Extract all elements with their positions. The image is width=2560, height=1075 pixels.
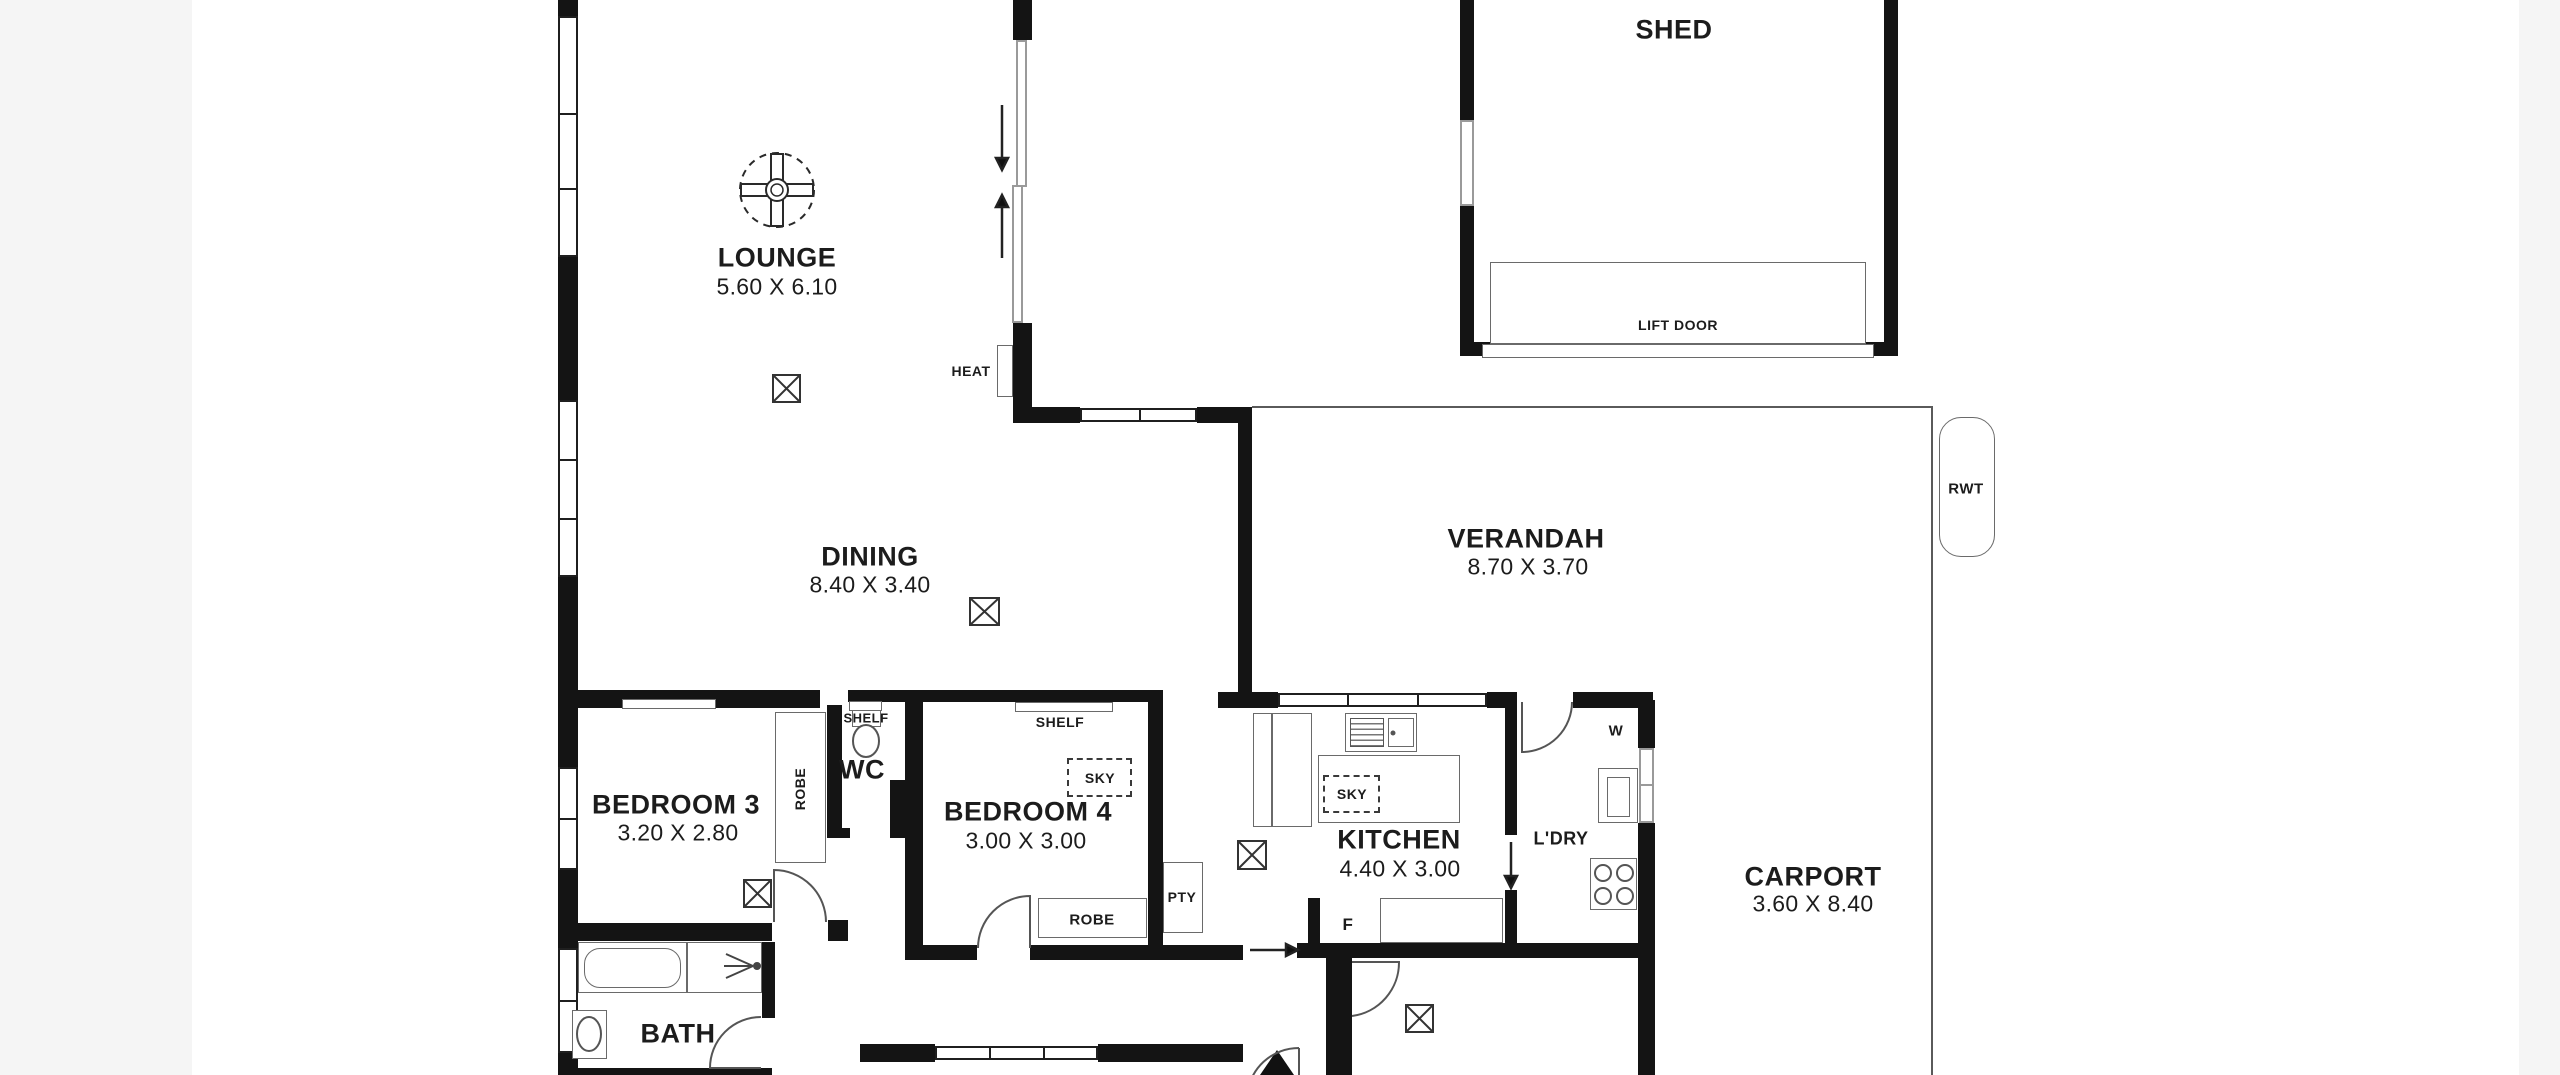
- shelf-label: SHELF: [1036, 714, 1084, 730]
- robe-label: ROBE: [1069, 912, 1114, 929]
- robe-label: ROBE: [792, 768, 808, 810]
- sky-label: SKY: [1337, 786, 1367, 802]
- room-dims-bedroom3: 3.20 X 2.80: [618, 820, 739, 847]
- plan-symbols: [0, 0, 2560, 1075]
- room-label-kitchen: KITCHEN: [1337, 825, 1461, 856]
- sink-tap-icon: [1391, 731, 1396, 736]
- slide-arrow-icon: [1505, 842, 1517, 888]
- room-label-verandah: VERANDAH: [1447, 524, 1604, 555]
- vanity-basin-icon: [577, 1017, 601, 1051]
- room-dims-lounge: 5.60 X 6.10: [717, 274, 838, 301]
- room-dims-bedroom4: 3.00 X 3.00: [966, 828, 1087, 855]
- slide-arrow-icon: [996, 105, 1008, 258]
- heat-label: HEAT: [951, 363, 990, 379]
- room-dims-dining: 8.40 X 3.40: [810, 572, 931, 599]
- room-label-bedroom4: BEDROOM 4: [944, 797, 1112, 828]
- room-label-shed: SHED: [1635, 15, 1712, 46]
- room-label-bedroom3: BEDROOM 3: [592, 790, 760, 821]
- washer-label: W: [1609, 723, 1624, 740]
- room-dims-verandah: 8.70 X 3.70: [1468, 554, 1589, 581]
- rwt-label: RWT: [1948, 481, 1983, 498]
- floor-plan: LOUNGE 5.60 X 6.10 DINING 8.40 X 3.40 VE…: [0, 0, 2560, 1075]
- downlight-icon: [744, 375, 1433, 1032]
- room-label-wc: WC: [839, 755, 885, 786]
- fridge-label: F: [1343, 915, 1354, 935]
- pantry-label: PTY: [1168, 889, 1197, 905]
- room-label-bath: BATH: [641, 1019, 716, 1050]
- slide-arrow-icon: [1250, 944, 1298, 956]
- door-arc: [710, 702, 2560, 1075]
- room-label-lounge: LOUNGE: [718, 243, 837, 274]
- room-label-laundry: L'DRY: [1533, 829, 1588, 850]
- sky-label: SKY: [1085, 770, 1115, 786]
- shower-rose-icon: [724, 954, 760, 978]
- burner-icon: [1595, 865, 1633, 904]
- shelf-label: SHELF: [843, 711, 888, 726]
- ceiling-fan-icon: [740, 153, 814, 227]
- room-label-carport: CARPORT: [1745, 862, 1882, 893]
- toilet-bowl-icon: [853, 725, 879, 757]
- room-label-dining: DINING: [821, 542, 919, 573]
- room-dims-carport: 3.60 X 8.40: [1753, 891, 1874, 918]
- lift-door-label: LIFT DOOR: [1638, 317, 1718, 333]
- room-dims-kitchen: 4.40 X 3.00: [1340, 856, 1461, 883]
